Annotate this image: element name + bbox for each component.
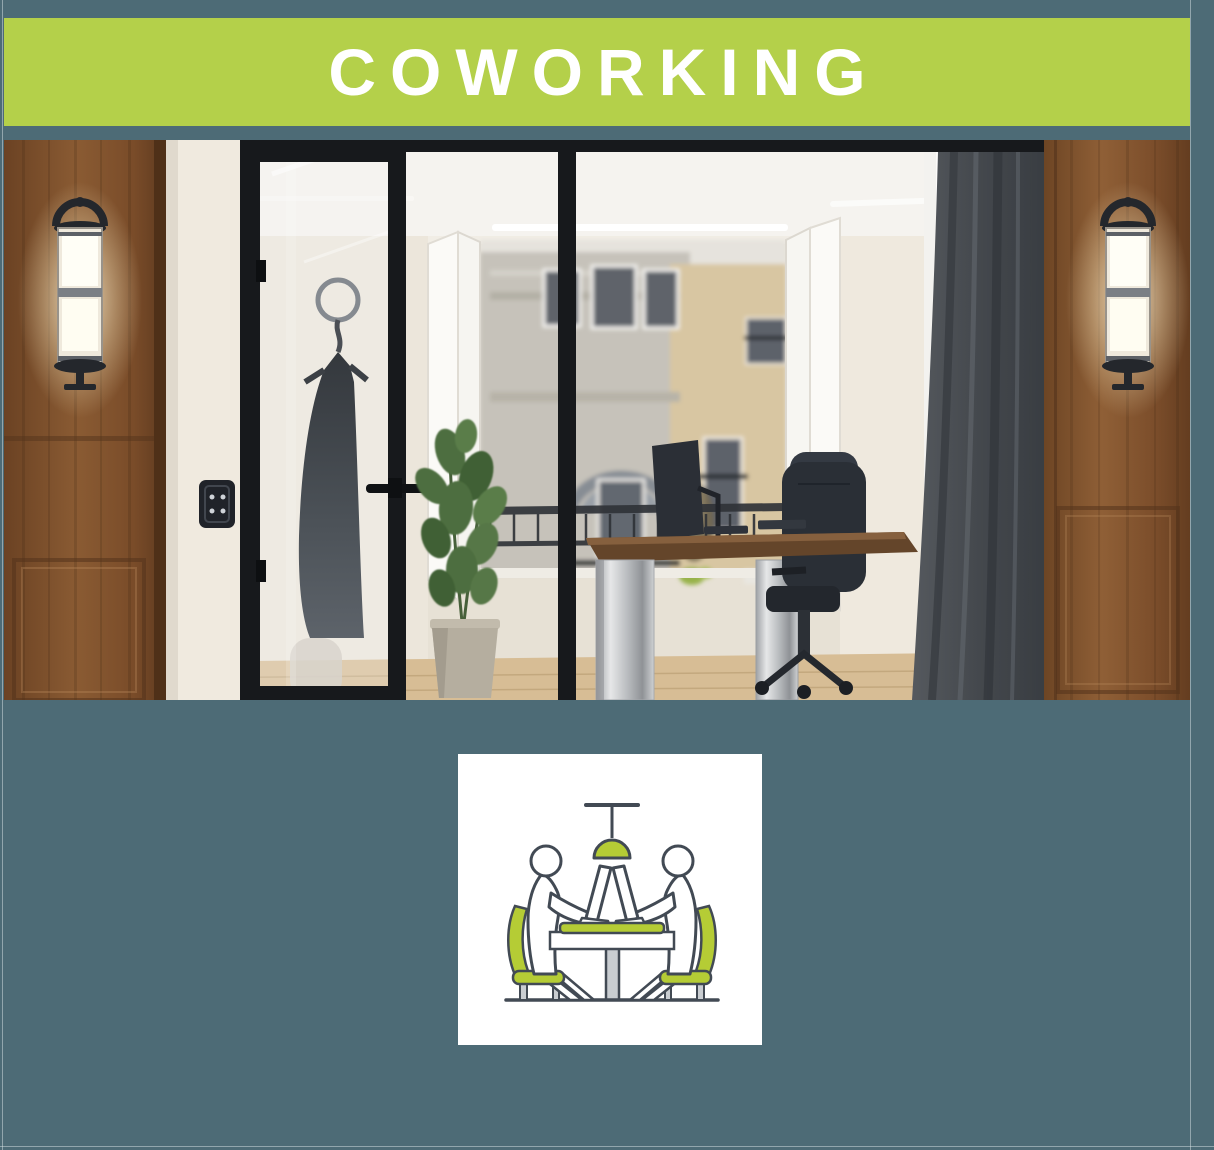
people-working-at-table-icon — [458, 754, 762, 1045]
office-photo-frame — [4, 140, 1190, 700]
slide-bottom-border — [0, 1146, 1214, 1147]
page-title: COWORKING — [314, 39, 879, 105]
slide-left-border — [2, 0, 3, 1150]
slide-canvas: { "page": { "background_color": "#4d6b76… — [0, 0, 1214, 1150]
title-banner: COWORKING — [4, 18, 1190, 126]
slide-right-border — [1190, 0, 1191, 1150]
office-interior-photo — [4, 140, 1190, 700]
icon-card — [458, 754, 762, 1045]
